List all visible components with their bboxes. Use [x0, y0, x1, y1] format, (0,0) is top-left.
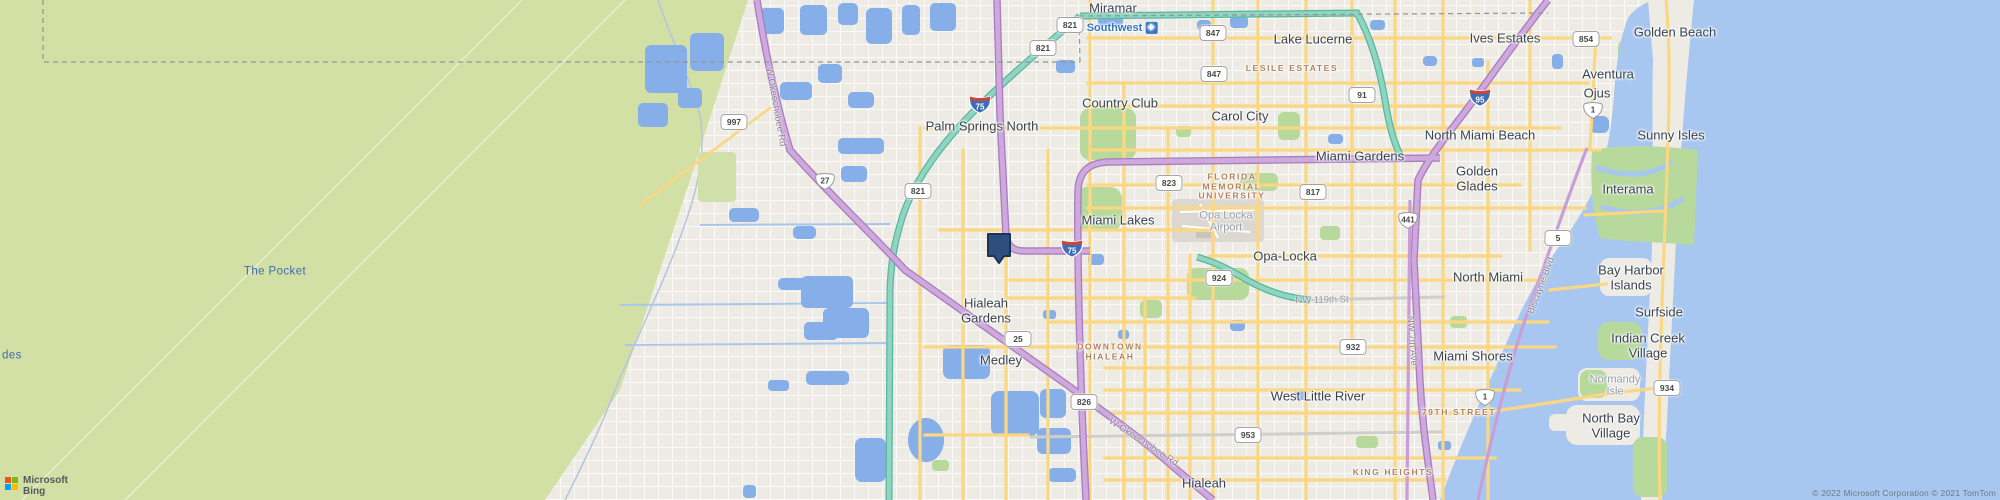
logo-line1: Microsoft: [23, 475, 68, 486]
everglades-lines: [22, 0, 625, 500]
map-canvas[interactable]: 8218218478478549199782382181759242593282…: [0, 0, 2000, 500]
bing-logo[interactable]: Microsoft Bing: [5, 475, 68, 497]
microsoft-logo-icon: [5, 477, 18, 490]
biscayne-bay-ocean: [1440, 0, 2000, 500]
interama-park: [1591, 146, 1698, 245]
purple-highways: [757, 0, 1587, 500]
county-boundary: [43, 0, 1548, 62]
opa-locka-airport-area: [1172, 199, 1264, 242]
logo-line2: Bing: [23, 486, 45, 497]
map-attribution: © 2022 Microsoft Corporation © 2021 TomT…: [1812, 488, 1996, 498]
map-pushpin[interactable]: [986, 232, 1012, 265]
